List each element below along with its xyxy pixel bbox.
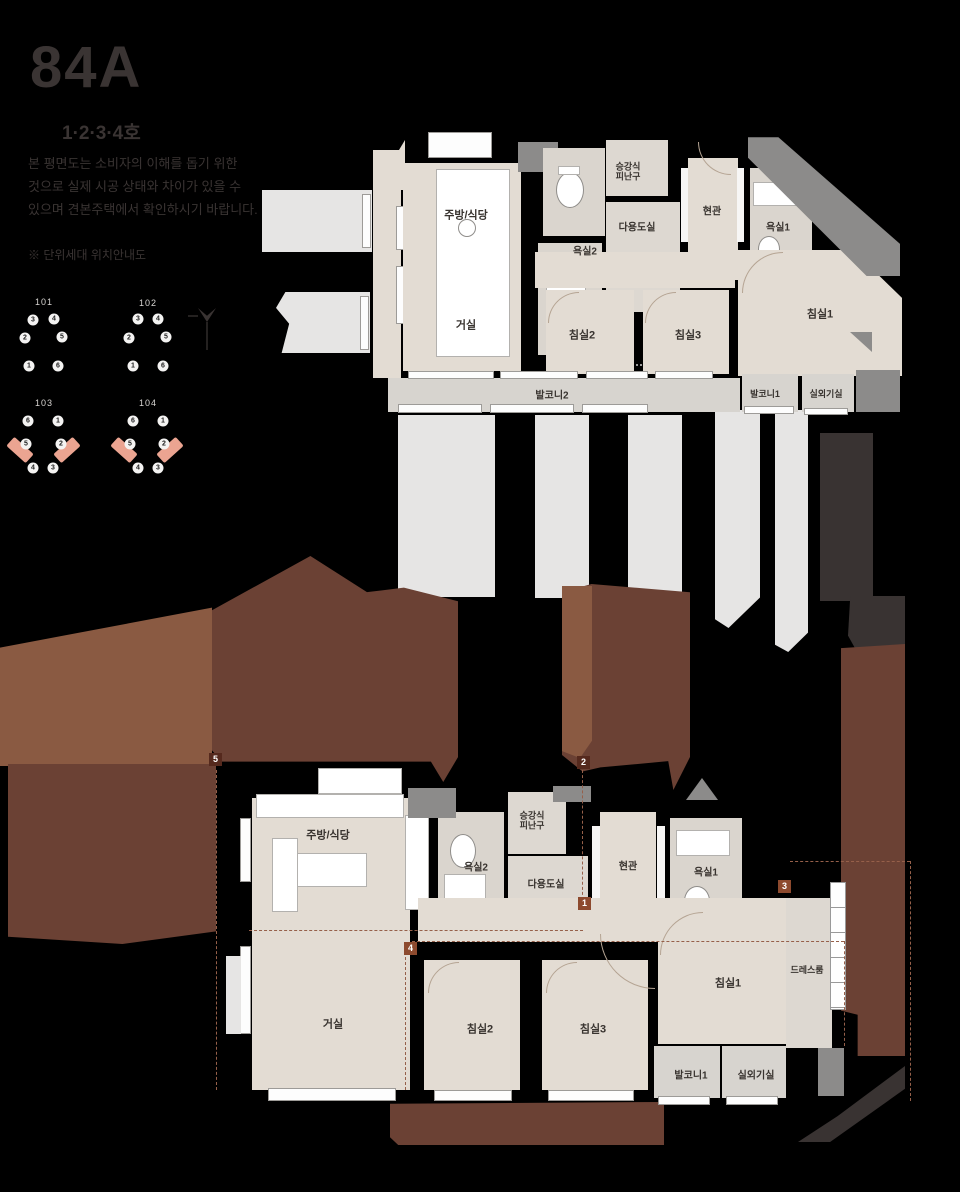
lower-room-label: 다용도실 — [528, 879, 565, 891]
description-line-3: 있으며 견본주택에서 확인하시기 바랍니다. — [28, 199, 258, 218]
upper-hall — [535, 252, 735, 288]
unit-number-circle: 5 — [21, 439, 32, 450]
window — [408, 371, 494, 379]
terrain-left-dark — [8, 764, 216, 944]
building-diagram-label: 103 — [35, 398, 53, 408]
building-column — [715, 410, 760, 628]
path-line — [412, 941, 844, 942]
upper-room-label: 욕실2 — [573, 246, 597, 258]
unit-number-circle: 4 — [133, 463, 144, 474]
route-marker: 5 — [209, 753, 222, 766]
building-diagram-label: 104 — [139, 398, 157, 408]
kitchen-hood — [318, 768, 402, 794]
path-line — [405, 952, 406, 1090]
unit-number-circle: 1 — [158, 416, 169, 427]
lower-room-label: 주방/식당 — [306, 830, 350, 843]
unit-number-circle: 5 — [57, 332, 68, 343]
bathtub — [676, 830, 730, 856]
side-bar — [226, 956, 241, 1034]
kitchen-counter — [256, 794, 404, 818]
route-marker: 3 — [778, 880, 791, 893]
floor-plan-page: 84A 1·2·3·4호 본 평면도는 소비자의 이해를 돕기 위한 것으로 실… — [0, 0, 960, 1192]
path-line — [216, 770, 217, 1090]
lower-room-label: 발코니1 — [674, 1070, 707, 1082]
unit-number-circle: 4 — [49, 314, 60, 325]
dark-column — [820, 433, 873, 601]
unit-number-circle: 2 — [159, 439, 170, 450]
gray-block — [408, 788, 456, 818]
path-line — [790, 861, 910, 862]
upper-room-label: 주방/식당 — [444, 210, 488, 223]
window — [398, 404, 482, 413]
building-column — [628, 415, 682, 597]
unit-number-circle: 3 — [28, 315, 39, 326]
upper-room-label: 욕실1 — [766, 222, 790, 234]
upper-room-label: 현관 — [703, 206, 721, 218]
unit-number-circle: 6 — [158, 361, 169, 372]
entry-slot — [681, 168, 688, 242]
unit-number-circle: 2 — [56, 439, 67, 450]
upper-room-label: 승강식 피난구 — [616, 162, 641, 183]
lower-room-label: 욕실1 — [694, 867, 718, 879]
window — [428, 132, 492, 158]
upper-room-label: 침실3 — [675, 330, 701, 343]
window — [360, 296, 369, 350]
entry-slot — [657, 826, 665, 898]
route-marker: 2 — [577, 756, 590, 769]
kitchen-appliance — [272, 838, 298, 912]
unit-number-circle: 6 — [128, 416, 139, 427]
window — [726, 1096, 778, 1105]
page-title: 84A — [30, 34, 142, 101]
gray-block — [553, 786, 591, 802]
unit-number-circle: 3 — [153, 463, 164, 474]
upper-room-label: 침실2 — [569, 330, 595, 343]
lower-room-label: 현관 — [619, 861, 637, 873]
upper-room-label: 실외기실 — [809, 389, 842, 399]
window — [548, 1090, 634, 1101]
upper-side-wing — [262, 190, 372, 252]
north-arrow-tick — [188, 315, 198, 317]
toilet — [556, 172, 584, 208]
unit-number-line: 1·2·3·4호 — [62, 118, 141, 145]
gray-block — [856, 370, 900, 412]
description-line-2: 것으로 실제 시공 상태와 차이가 있을 수 — [28, 176, 241, 195]
path-line — [910, 861, 911, 1101]
north-arrow-icon — [198, 308, 216, 322]
unit-number-circle: 6 — [53, 361, 64, 372]
window — [490, 404, 574, 413]
window — [240, 946, 251, 1034]
unit-number-circle: 6 — [23, 416, 34, 427]
building-column — [775, 410, 808, 652]
terrain-right-column — [841, 644, 905, 1056]
lower-room-label: 드레스룸 — [790, 965, 823, 975]
north-arrow-line — [206, 322, 208, 350]
unit-number-circle: 3 — [48, 463, 59, 474]
unit-number-circle: 1 — [128, 361, 139, 372]
lower-room-label: 침실1 — [715, 978, 741, 991]
unit-number-circle: 5 — [161, 332, 172, 343]
upper-room-label: 발코니2 — [535, 390, 568, 402]
building-column — [535, 415, 589, 598]
unit-number-circle: 4 — [153, 314, 164, 325]
unit-number-circle: 2 — [124, 333, 135, 344]
building-column — [398, 415, 495, 597]
window — [655, 371, 713, 379]
window — [804, 408, 848, 415]
unit-number-circle: 3 — [133, 314, 144, 325]
terrain-bottom-strip — [390, 1102, 664, 1145]
toilet-tank — [558, 166, 580, 175]
lower-room-label: 거실 — [323, 1019, 343, 1032]
kitchen-column — [405, 815, 429, 910]
lower-room-label: 침실3 — [580, 1024, 606, 1037]
window — [582, 404, 648, 413]
terrain-left-light — [0, 606, 212, 766]
upper-side-wing — [276, 292, 370, 353]
gray-block — [818, 1048, 844, 1096]
terrain-mid-right-facet — [562, 586, 592, 758]
lower-room-label: 실외기실 — [738, 1070, 775, 1082]
upper-room-label: 발코니1 — [750, 389, 780, 399]
bottom-right-swoosh — [798, 1066, 905, 1142]
path-line — [249, 930, 583, 931]
lower-room-label: 승강식 피난구 — [520, 811, 545, 832]
window — [268, 1088, 396, 1101]
upper-room-label: 다용도실 — [619, 222, 656, 234]
window — [500, 371, 578, 379]
window — [362, 194, 371, 248]
kitchen-island — [287, 853, 367, 887]
building-diagram-label: 101 — [35, 297, 53, 307]
route-marker: 4 — [404, 942, 417, 955]
entry-slot — [737, 168, 744, 242]
unit-number-circle: 1 — [24, 361, 35, 372]
unit-number-circle: 1 — [53, 416, 64, 427]
lower-room-label: 침실2 — [467, 1024, 493, 1037]
window — [658, 1096, 710, 1105]
unit-number-circle: 5 — [125, 439, 136, 450]
entry-slot — [592, 826, 600, 898]
window — [434, 1090, 512, 1101]
window — [240, 818, 251, 882]
window — [744, 406, 794, 414]
lower-room-label: 욕실2 — [464, 862, 488, 874]
description-line-1: 본 평면도는 소비자의 이해를 돕기 위한 — [28, 153, 237, 172]
note-line: ※ 단위세대 위치안내도 — [28, 246, 146, 263]
building-diagram-label: 102 — [139, 298, 157, 308]
window — [586, 371, 648, 379]
path-line — [582, 770, 583, 900]
unit-number-circle: 2 — [20, 333, 31, 344]
path-line — [844, 941, 845, 1046]
gray-roof-triangle — [686, 778, 718, 800]
upper-room-label: 거실 — [456, 320, 476, 333]
upper-room-label: 침실1 — [807, 309, 833, 322]
unit-number-circle: 4 — [28, 463, 39, 474]
route-marker: 1 — [578, 897, 591, 910]
